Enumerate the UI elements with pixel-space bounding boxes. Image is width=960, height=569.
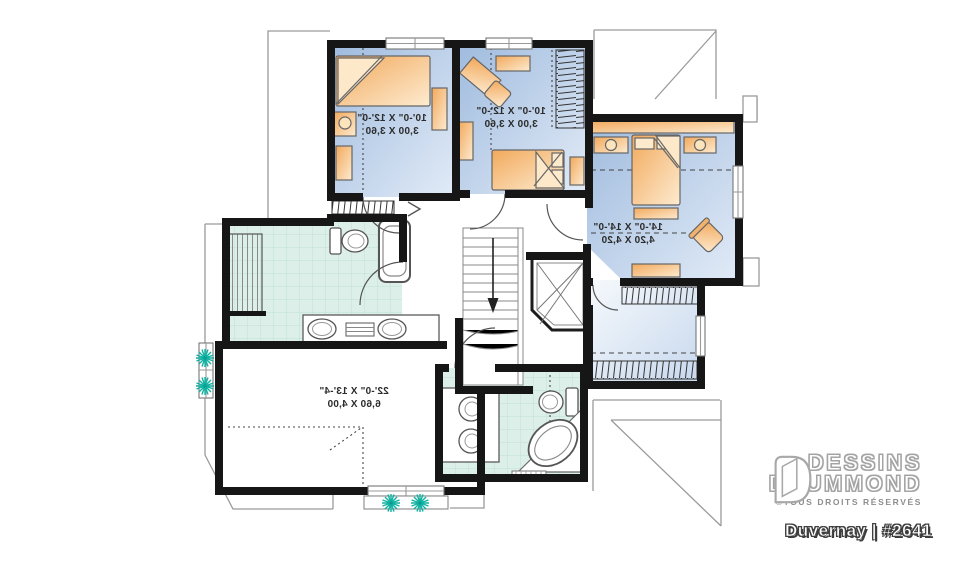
double-vanity: [303, 315, 439, 344]
shelf: [590, 121, 734, 133]
linen-closet-shelves: [226, 234, 262, 314]
dresser: [336, 146, 352, 180]
walk-in-rod-bottom: [590, 361, 697, 379]
bedroom-2-label: 10'-0" X 12'-0" 3,00 X 3,60: [441, 106, 581, 131]
shower: [532, 258, 588, 330]
window-box: [364, 496, 448, 509]
bedroom-2-dim-metric: 3,00 X 3,60: [441, 119, 581, 132]
nightstand: [570, 157, 584, 185]
plan-title: Duvernay | #2641: [785, 521, 932, 541]
bonus-room-label: 22'-0" X 13'-4" 6,60 X 4,00: [284, 386, 424, 411]
bedroom-2-door: [470, 194, 505, 229]
drummond-door-icon: [769, 452, 815, 506]
window: [733, 166, 743, 218]
dresser: [496, 56, 530, 71]
toilet-icon: [330, 228, 368, 254]
ensuite-vanity: [442, 388, 499, 462]
window: [696, 316, 705, 356]
master-dim-metric: 4,20 X 4,20: [558, 235, 698, 248]
brand-logo: DESSINS DRUMMOND ©TOUS DROITS RÉSERVÉS: [769, 452, 922, 507]
dresser: [632, 264, 680, 277]
bonus-dim-metric: 6,60 X 4,00: [284, 399, 424, 412]
window: [368, 486, 444, 496]
window: [486, 38, 532, 49]
lamp-icon: [606, 140, 617, 151]
walk-in-rod-top: [622, 287, 698, 304]
lamp-icon: [695, 140, 706, 151]
bifold-door-icon: [408, 202, 420, 216]
floor-plan-canvas: 10'-0" X 12'-0" 3,00 X 3,60 10'-0" X 12'…: [0, 0, 960, 569]
bench: [634, 208, 678, 219]
bedroom-2-dim-imperial: 10'-0" X 12'-0": [441, 106, 581, 119]
master-dim-imperial: 14'-0" X 14'-0": [558, 222, 698, 235]
stairs: [463, 228, 523, 385]
master-bedroom-label: 14'-0" X 14'-0" 4,20 X 4,20: [558, 222, 698, 247]
window: [386, 38, 444, 49]
bonus-dim-imperial: 22'-0" X 13'-4": [284, 386, 424, 399]
